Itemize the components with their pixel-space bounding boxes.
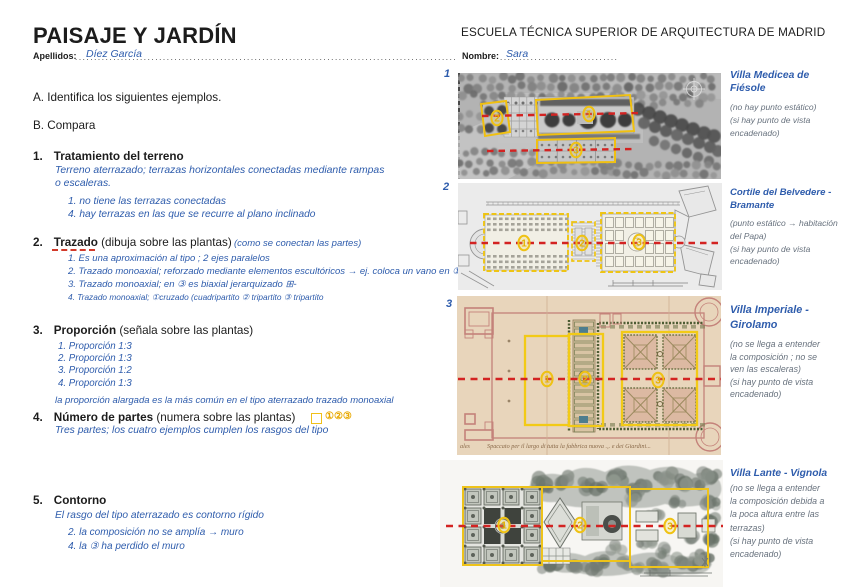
svg-text:2: 2 — [494, 114, 500, 125]
svg-text:3: 3 — [636, 238, 642, 249]
svg-text:ales: ales — [460, 443, 471, 450]
svg-text:2: 2 — [577, 521, 583, 532]
svg-text:2: 2 — [579, 239, 585, 250]
svg-text:3: 3 — [655, 376, 661, 387]
svg-text:1: 1 — [521, 239, 527, 250]
svg-text:Spaccato per il largo di tutta: Spaccato per il largo di tutta la fabbri… — [487, 443, 651, 450]
svg-text:1: 1 — [586, 110, 592, 121]
svg-text:3: 3 — [573, 146, 579, 157]
svg-text:1: 1 — [501, 521, 507, 532]
svg-text:3: 3 — [667, 522, 673, 533]
svg-text:2: 2 — [582, 375, 588, 386]
svg-text:1: 1 — [544, 375, 550, 386]
